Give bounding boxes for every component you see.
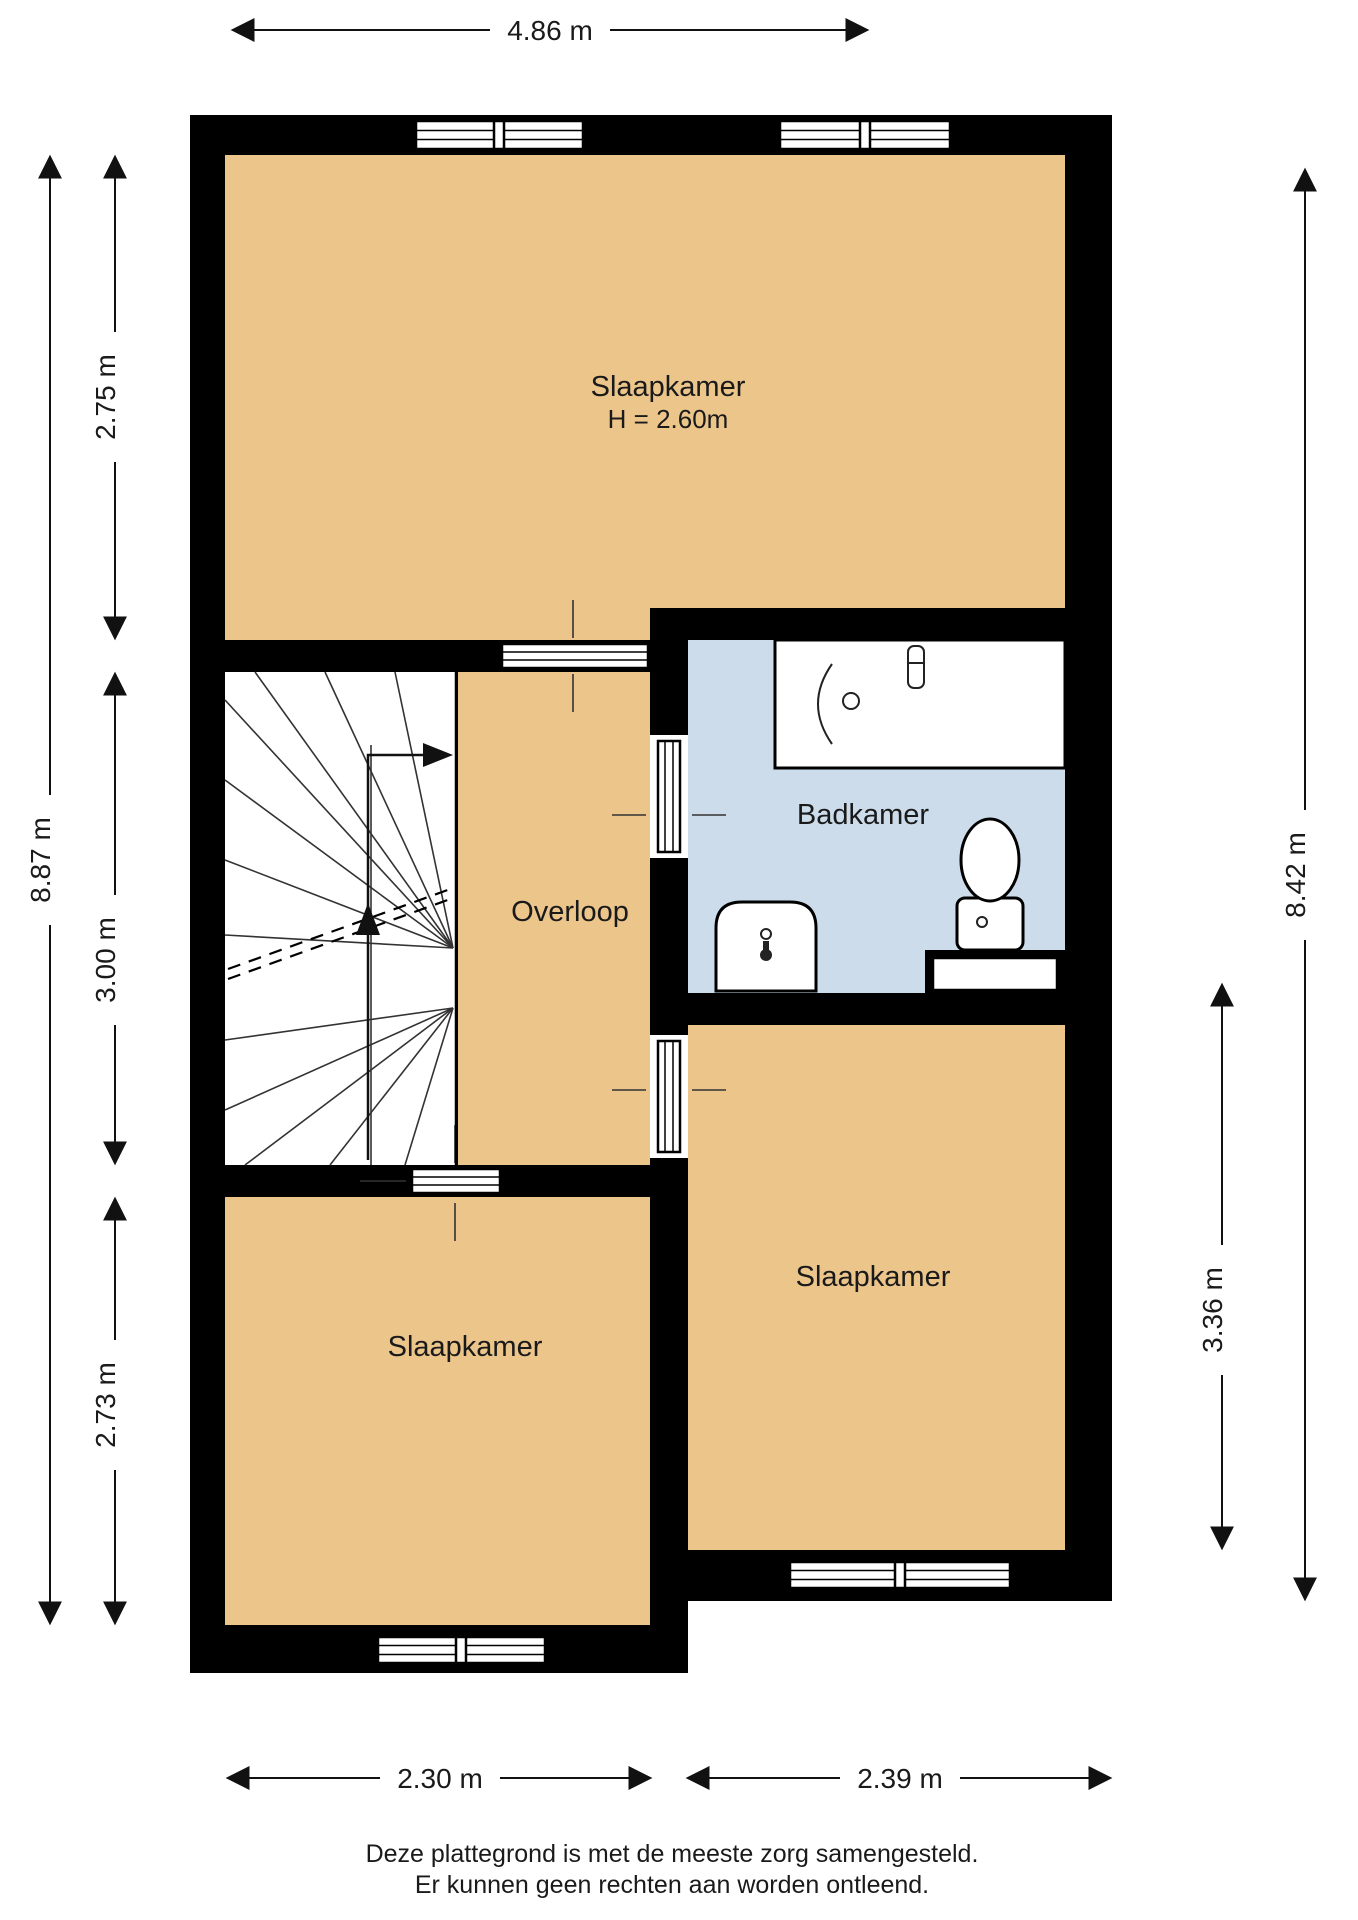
bathtub-icon bbox=[775, 640, 1065, 768]
window-bottom-right bbox=[790, 1562, 1010, 1588]
window-bottom-left bbox=[378, 1637, 545, 1663]
dim-left-total: 8.87 m bbox=[25, 157, 70, 1623]
floorplan-canvas: Slaapkamer H = 2.60m Overloop Badkamer S… bbox=[0, 0, 1358, 1920]
svg-text:2.30 m: 2.30 m bbox=[397, 1763, 483, 1794]
dim-bottom-right: 2.39 m bbox=[688, 1758, 1110, 1798]
svg-text:8.87 m: 8.87 m bbox=[25, 817, 56, 903]
svg-text:8.42 m: 8.42 m bbox=[1280, 832, 1311, 918]
svg-text:2.39 m: 2.39 m bbox=[857, 1763, 943, 1794]
dim-top-width: 4.86 m bbox=[233, 10, 867, 50]
sink-icon bbox=[716, 902, 816, 991]
footer-disclaimer-line2: Er kunnen geen rechten aan worden ontlee… bbox=[415, 1871, 929, 1899]
label-bedroom-top-height: H = 2.60m bbox=[608, 404, 729, 434]
dim-left-middle: 3.00 m bbox=[90, 674, 135, 1163]
label-bedroom-right: Slaapkamer bbox=[796, 1261, 951, 1293]
window-top-a bbox=[416, 121, 583, 149]
dim-left-top: 2.75 m bbox=[90, 157, 135, 638]
room-bedroom-left bbox=[225, 1197, 650, 1625]
svg-text:2.73 m: 2.73 m bbox=[90, 1362, 121, 1448]
dim-left-bottom: 2.73 m bbox=[90, 1199, 135, 1623]
floorplan-page: Slaapkamer H = 2.60m Overloop Badkamer S… bbox=[0, 0, 1358, 1920]
wall-niche bbox=[933, 958, 1057, 990]
svg-text:3.00 m: 3.00 m bbox=[90, 917, 121, 1003]
dim-bottom-left: 2.30 m bbox=[228, 1758, 650, 1798]
svg-text:4.86 m: 4.86 m bbox=[507, 15, 593, 46]
label-landing: Overloop bbox=[511, 896, 629, 928]
label-bedroom-left: Slaapkamer bbox=[388, 1331, 543, 1363]
label-bedroom-top: Slaapkamer bbox=[591, 371, 746, 403]
svg-text:2.75 m: 2.75 m bbox=[90, 354, 121, 440]
toilet-icon bbox=[957, 819, 1023, 950]
label-bathroom: Badkamer bbox=[797, 799, 930, 831]
svg-text:3.36 m: 3.36 m bbox=[1197, 1267, 1228, 1353]
dim-right-bedroom: 3.36 m bbox=[1197, 985, 1242, 1548]
stairs-floor bbox=[225, 672, 455, 1165]
dim-right-total: 8.42 m bbox=[1280, 170, 1325, 1599]
window-top-b bbox=[780, 121, 950, 149]
footer-disclaimer-line1: Deze plattegrond is met de meeste zorg s… bbox=[366, 1840, 979, 1868]
